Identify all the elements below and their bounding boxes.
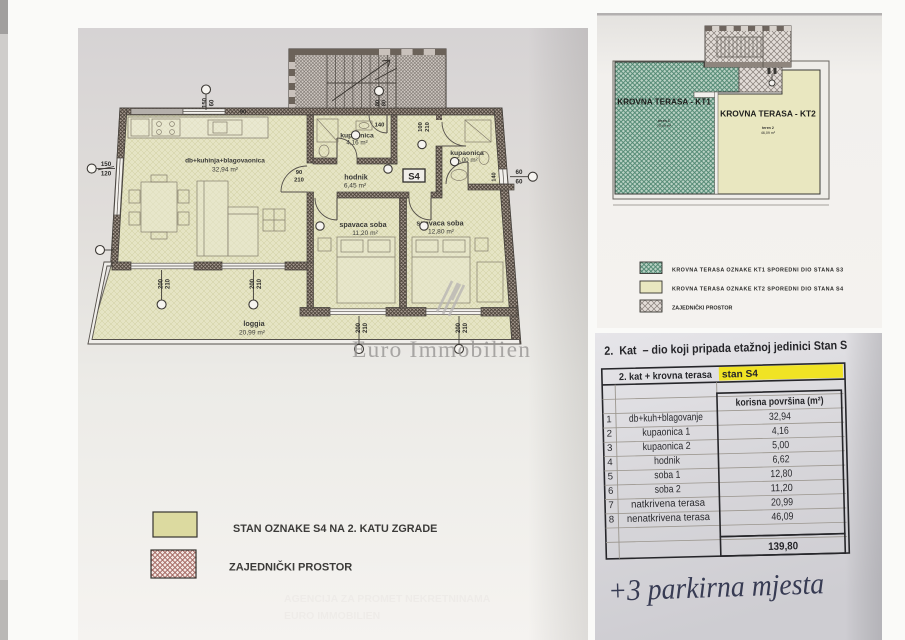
svg-text:6,45 m²: 6,45 m² [344, 183, 367, 190]
svg-text:db+kuhinja+blagovaonica: db+kuhinja+blagovaonica [185, 158, 265, 165]
svg-text:200: 200 [356, 322, 362, 333]
svg-text:STAN OZNAKE S4 NA 2. KATU ZGRA: STAN OZNAKE S4 NA 2. KATU ZGRADE [233, 523, 437, 535]
svg-text:60: 60 [516, 179, 523, 186]
svg-text:200: 200 [158, 278, 164, 289]
svg-text:12,80 m²: 12,80 m² [428, 229, 455, 236]
svg-text:4,16: 4,16 [772, 426, 789, 437]
svg-text:32,94: 32,94 [769, 411, 791, 423]
svg-text:20,99: 20,99 [771, 497, 793, 509]
svg-text:90: 90 [296, 170, 302, 176]
svg-text:210: 210 [425, 122, 431, 132]
svg-text:AGENCIJA ZA PROMET NEKRETNINAM: AGENCIJA ZA PROMET NEKRETNINAMA [284, 593, 491, 605]
svg-text:KROVNA TERASA - KT1: KROVNA TERASA - KT1 [617, 98, 711, 107]
svg-text:8: 8 [609, 514, 615, 525]
svg-text:60: 60 [516, 169, 523, 176]
svg-text:nenatkrivena terasa: nenatkrivena terasa [627, 512, 710, 525]
svg-text:hodnik: hodnik [654, 455, 681, 467]
svg-text:KROVNA TERASA - KT2: KROVNA TERASA - KT2 [720, 109, 816, 119]
svg-text:5,00: 5,00 [772, 440, 789, 451]
svg-text:46,09: 46,09 [771, 511, 793, 523]
svg-text:kupaonica 1: kupaonica 1 [642, 427, 690, 439]
svg-text:teren 1: teren 1 [658, 119, 670, 123]
svg-text:80: 80 [382, 100, 388, 106]
svg-text:KROVNA TERASA OZNAKE KT2 SPORE: KROVNA TERASA OZNAKE KT2 SPOREDNI DIO ST… [672, 287, 844, 293]
svg-text:soba 1: soba 1 [654, 470, 680, 482]
svg-text:S4: S4 [408, 171, 420, 182]
svg-text:db+kuh+blagovanje: db+kuh+blagovanje [629, 412, 703, 425]
svg-text:210: 210 [294, 178, 304, 184]
svg-text:5,00 m²: 5,00 m² [456, 157, 477, 164]
svg-text:210: 210 [363, 322, 369, 333]
svg-text:11,20 m²: 11,20 m² [352, 230, 378, 237]
svg-text:teren 2: teren 2 [762, 126, 774, 130]
svg-text:200: 200 [456, 322, 462, 333]
svg-text:7: 7 [608, 500, 614, 511]
svg-text:ZAJEDNIČKI PROSTOR: ZAJEDNIČKI PROSTOR [229, 561, 352, 574]
svg-text:150: 150 [203, 97, 209, 108]
svg-text:kupaonica: kupaonica [450, 150, 484, 157]
svg-text:soba 2: soba 2 [655, 484, 681, 496]
svg-text:stan S4: stan S4 [722, 369, 759, 381]
svg-text:spavaca soba: spavaca soba [339, 220, 387, 229]
svg-text:2. kat + krovna terasa: 2. kat + krovna terasa [619, 370, 713, 383]
svg-text:hodnik: hodnik [344, 173, 368, 182]
svg-text:80: 80 [375, 100, 381, 106]
svg-text:4,16 m²: 4,16 m² [346, 140, 367, 147]
svg-text:1: 1 [606, 414, 612, 425]
svg-text:140: 140 [492, 172, 498, 181]
svg-text:20,99 m²: 20,99 m² [239, 330, 266, 337]
svg-text:loggia: loggia [243, 319, 265, 328]
svg-text:140: 140 [375, 123, 385, 129]
svg-text:6,62: 6,62 [772, 454, 789, 465]
svg-text:90: 90 [240, 110, 246, 116]
svg-text:210: 210 [463, 322, 469, 333]
svg-text:KROVNA TERASA OZNAKE KT1 SPORE: KROVNA TERASA OZNAKE KT1 SPOREDNI DIO ST… [672, 268, 844, 274]
svg-text:139,80: 139,80 [768, 540, 798, 553]
svg-text:210: 210 [165, 278, 171, 289]
svg-text:3: 3 [607, 443, 613, 454]
svg-text:4: 4 [607, 457, 613, 468]
svg-text:100: 100 [418, 122, 424, 132]
svg-text:120: 120 [101, 171, 112, 178]
svg-text:12,80: 12,80 [770, 469, 792, 481]
svg-text:32,94 m²: 32,94 m² [212, 167, 239, 174]
svg-text:2: 2 [607, 429, 613, 440]
svg-text:210: 210 [257, 278, 263, 289]
svg-text:korisna površina (m²): korisna površina (m²) [735, 396, 823, 409]
svg-text:70,49 m²: 70,49 m² [657, 124, 672, 128]
svg-text:200: 200 [250, 278, 256, 289]
svg-text:kupaonica 2: kupaonica 2 [643, 441, 691, 453]
svg-text:5: 5 [608, 471, 614, 482]
svg-text:Euro Immobilien: Euro Immobilien [352, 337, 531, 363]
svg-text:EURO IMMOBILIEN: EURO IMMOBILIEN [284, 610, 380, 622]
svg-text:11,20: 11,20 [771, 483, 793, 495]
svg-text:ZAJEDNIČKI PROSTOR: ZAJEDNIČKI PROSTOR [672, 305, 733, 312]
svg-text:6: 6 [608, 486, 614, 497]
svg-text:natkrivena terasa: natkrivena terasa [631, 498, 705, 511]
svg-text:60: 60 [210, 99, 216, 106]
svg-text:46,09 m²: 46,09 m² [761, 131, 776, 135]
